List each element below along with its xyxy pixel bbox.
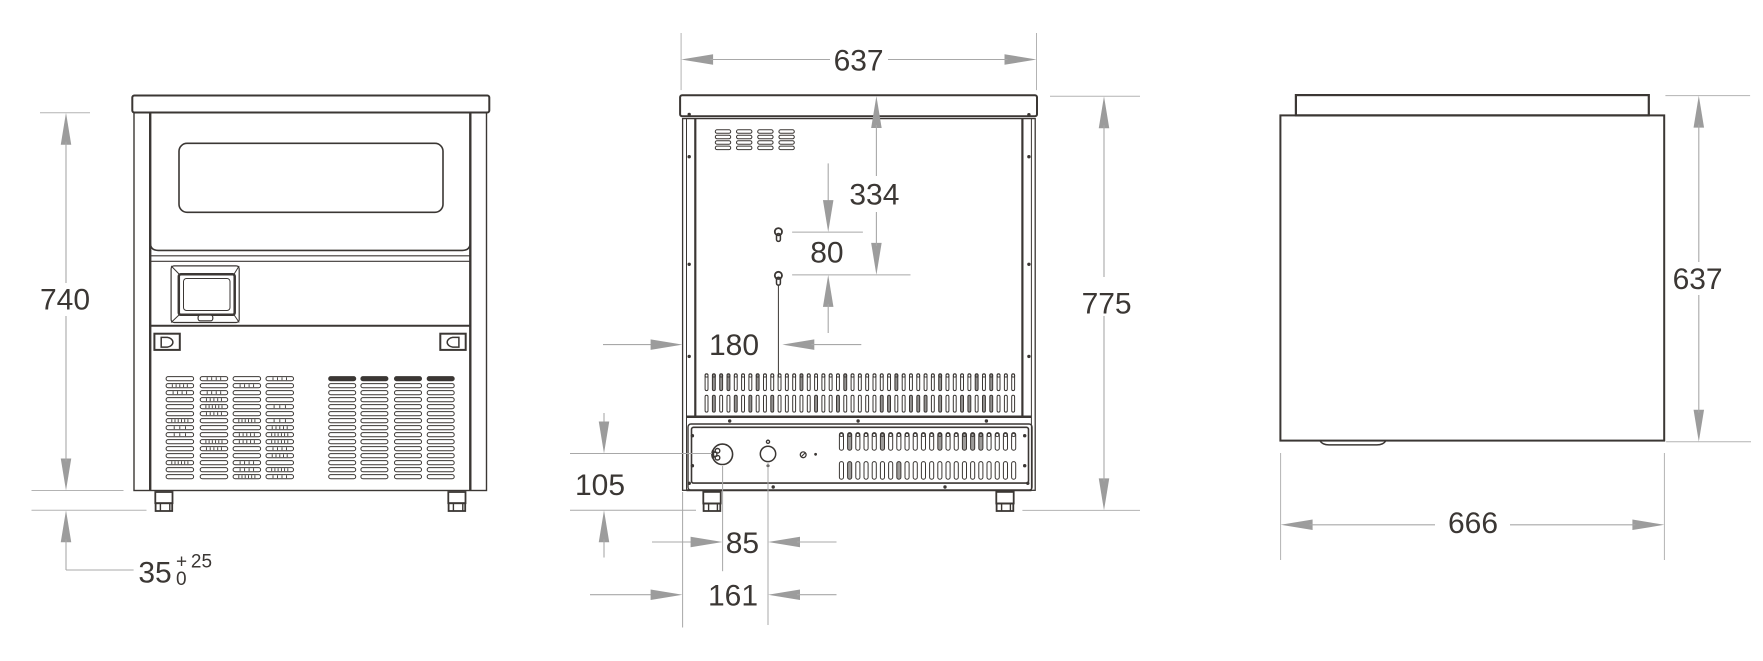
svg-text:740: 740 — [40, 284, 90, 317]
svg-text:0: 0 — [176, 569, 187, 590]
svg-text:35: 35 — [138, 556, 171, 589]
svg-text:180: 180 — [709, 329, 759, 362]
svg-text:666: 666 — [1448, 507, 1498, 540]
svg-text:161: 161 — [708, 580, 758, 613]
svg-text:334: 334 — [849, 179, 899, 212]
svg-text:775: 775 — [1082, 288, 1132, 321]
svg-text:105: 105 — [575, 469, 625, 502]
svg-text:85: 85 — [726, 527, 759, 560]
svg-text:80: 80 — [810, 237, 843, 270]
svg-text:637: 637 — [1673, 263, 1723, 296]
svg-text:637: 637 — [834, 44, 884, 77]
